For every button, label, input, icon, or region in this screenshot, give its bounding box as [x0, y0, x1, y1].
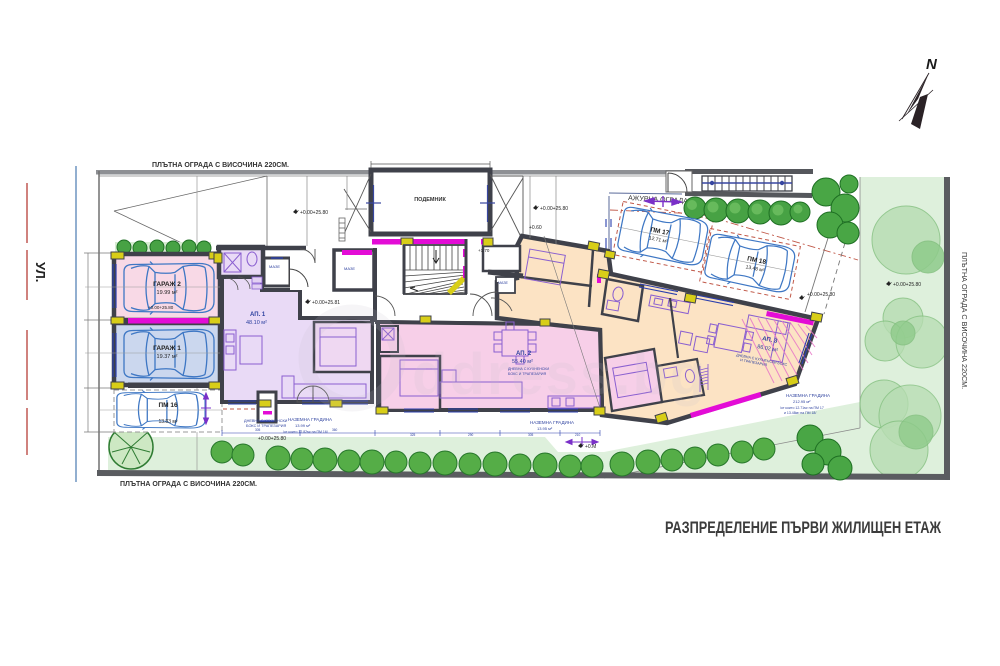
svg-text:+0.00+25.81: +0.00+25.81 — [312, 300, 340, 306]
svg-text:НАЗЕМНА ГРАДИНА: НАЗЕМНА ГРАДИНА — [786, 393, 830, 398]
svg-text:13.83 м²: 13.83 м² — [158, 419, 177, 425]
svg-text:ПОДЕМНИК: ПОДЕМНИК — [414, 197, 446, 203]
svg-text:+0.00+25.80: +0.00+25.80 — [540, 206, 568, 212]
svg-text:+0.00+25.80: +0.00+25.80 — [258, 436, 286, 442]
svg-text:и 13.48м² на ПМ 18/: и 13.48м² на ПМ 18/ — [784, 411, 816, 415]
svg-text:48.10 м²: 48.10 м² — [246, 320, 267, 326]
svg-text:/от които 12.82м² на ПМ 16/: /от които 12.82м² на ПМ 16/ — [283, 430, 328, 434]
svg-text:+1.70: +1.70 — [478, 248, 490, 253]
svg-text:/от които 12.71м² на ПМ 17: /от които 12.71м² на ПМ 17 — [780, 406, 824, 410]
svg-text:290: 290 — [468, 433, 474, 437]
svg-text:+0.00+25.80: +0.00+25.80 — [807, 292, 835, 298]
svg-text:ПЛЪТНА ОГРАДА С ВИСОЧИНА 220СМ: ПЛЪТНА ОГРАДА С ВИСОЧИНА 220СМ. — [960, 252, 969, 389]
svg-text:360: 360 — [332, 428, 338, 432]
svg-text:+0.00+25.80: +0.00+25.80 — [148, 305, 174, 310]
svg-text:МАЗЕ: МАЗЕ — [344, 266, 355, 271]
svg-text:13.99 м²: 13.99 м² — [295, 423, 311, 428]
svg-text:N: N — [926, 56, 938, 73]
svg-text:325: 325 — [410, 433, 416, 437]
svg-text:+0.М: +0.М — [585, 444, 596, 450]
svg-text:НАЗЕМНА ГРАДИНА: НАЗЕМНА ГРАДИНА — [288, 417, 332, 422]
svg-text:ПЛЪТНА ОГРАДА С ВИСОЧИНА 220СМ: ПЛЪТНА ОГРАДА С ВИСОЧИНА 220СМ. — [120, 481, 257, 488]
svg-text:305: 305 — [528, 433, 534, 437]
svg-text:АП. 1: АП. 1 — [250, 312, 266, 318]
svg-text:РАЗПРЕДЕЛЕНИЕ ПЪРВИ ЖИЛИЩЕН ЕТ: РАЗПРЕДЕЛЕНИЕ ПЪРВИ ЖИЛИЩЕН ЕТАЖ — [665, 519, 941, 537]
svg-text:ПМ 16: ПМ 16 — [158, 402, 178, 409]
svg-text:НАЗЕМНА ГРАДИНА: НАЗЕМНА ГРАДИНА — [530, 420, 574, 425]
svg-text:ГАРАЖ 1: ГАРАЖ 1 — [153, 345, 181, 352]
svg-text:13.95 м²: 13.95 м² — [537, 426, 553, 431]
svg-text:19.37 м²: 19.37 м² — [157, 354, 178, 360]
svg-text:ddress.bg: ddress.bg — [412, 342, 707, 407]
svg-text:+0.60: +0.60 — [529, 225, 542, 231]
svg-text:+0.00+25.80: +0.00+25.80 — [893, 282, 921, 288]
svg-text:19.99 м²: 19.99 м² — [157, 290, 178, 296]
svg-text:МАЗЕ: МАЗЕ — [498, 281, 509, 285]
svg-text:ДНЕВНА С КУХНЕНСКИ: ДНЕВНА С КУХНЕНСКИ — [244, 419, 288, 423]
svg-text:МАЗЕ: МАЗЕ — [269, 264, 280, 269]
svg-text:БОКС И ТРАПЕЗАРИЯ: БОКС И ТРАПЕЗАРИЯ — [246, 424, 287, 428]
svg-text:+0.00+25.80: +0.00+25.80 — [300, 210, 328, 216]
svg-text:ПЛЪТНА ОГРАДА С ВИСОЧИНА 220СМ: ПЛЪТНА ОГРАДА С ВИСОЧИНА 220СМ. — [152, 162, 289, 169]
svg-text:212.95 м²: 212.95 м² — [793, 399, 811, 404]
svg-text:УЛ.: УЛ. — [33, 262, 48, 282]
svg-text:210: 210 — [575, 433, 581, 437]
svg-text:305: 305 — [255, 428, 261, 432]
